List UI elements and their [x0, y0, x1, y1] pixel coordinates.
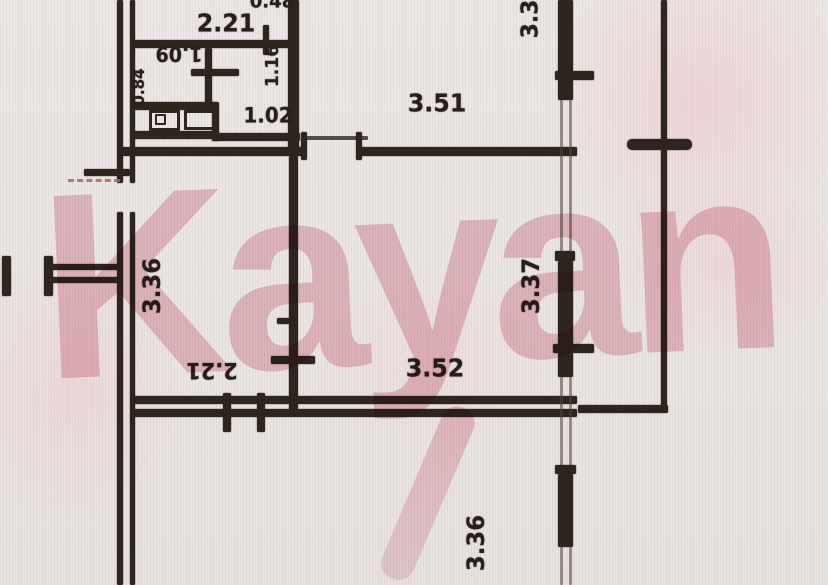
dim-2-21-top: 2.21 [197, 11, 256, 36]
dim-3-52: 3.52 [406, 356, 465, 381]
dim-3-37-right: 3.37 [519, 258, 543, 314]
dim-3-3-topright: 3.3 [520, 0, 543, 38]
dim-3-36-left: 3.36 [140, 258, 164, 314]
dim-1-09-wc: 1.09 [156, 44, 203, 64]
dim-2-21-flipped: 2.21 [186, 358, 238, 380]
dim-1-02: 1.02 [243, 106, 292, 127]
dim-0-48-top: 0.48 [250, 0, 295, 12]
dim-3-51: 3.51 [408, 91, 467, 116]
dim-3-36-bottom: 3.36 [464, 515, 488, 571]
floor-plan-scan: 0.482.211.090.841.161.023.513.33.363.372… [0, 0, 828, 585]
labels-layer: 0.482.211.090.841.161.023.513.33.363.372… [0, 0, 828, 585]
dim-0-84-left: 0.84 [131, 68, 147, 106]
dim-1-16-right: 1.16 [264, 45, 282, 87]
